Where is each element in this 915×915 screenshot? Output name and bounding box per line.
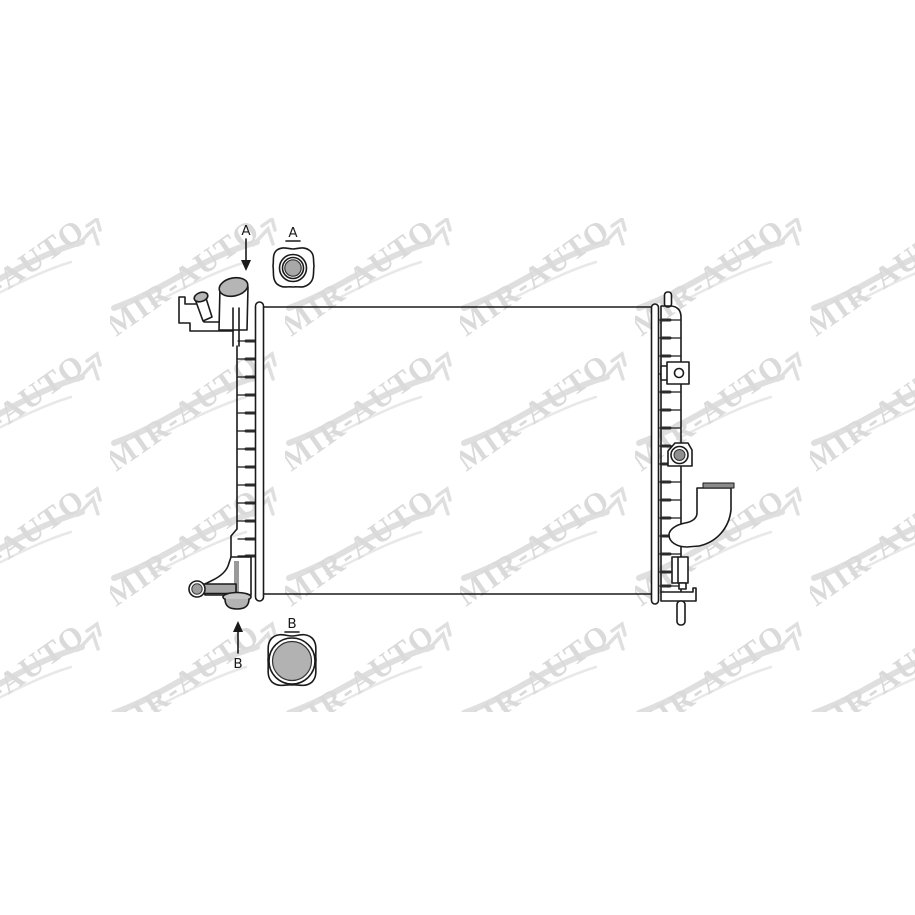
outlet-pipe-opening (192, 584, 202, 594)
outlet-pipe-left (201, 584, 236, 594)
right-side-plate (652, 304, 659, 604)
bracket-hole (675, 369, 684, 378)
detail-b-label: B (287, 616, 296, 632)
arrow-b-label: B (233, 656, 242, 672)
sensor-port-opening (674, 450, 685, 461)
sensor-port (668, 443, 692, 466)
mounting-pin-top (665, 292, 672, 307)
elbow-pipe-rim (703, 483, 734, 488)
drain-plug-detail-b (268, 632, 316, 685)
mounting-pin-bottom (677, 601, 685, 625)
product-image-radiator: MIR-AUTO (0, 0, 915, 915)
cap-b-center (273, 642, 312, 681)
watermark-layer (0, 218, 915, 712)
side-bracket-right (661, 362, 689, 384)
arrow-a-label: A (241, 223, 251, 239)
radiator-diagram-svg: MIR-AUTO (0, 0, 915, 915)
left-side-plate (256, 302, 264, 601)
cap-a-center (285, 260, 301, 276)
detail-a-label: A (288, 225, 298, 241)
drain-plug (223, 593, 251, 610)
